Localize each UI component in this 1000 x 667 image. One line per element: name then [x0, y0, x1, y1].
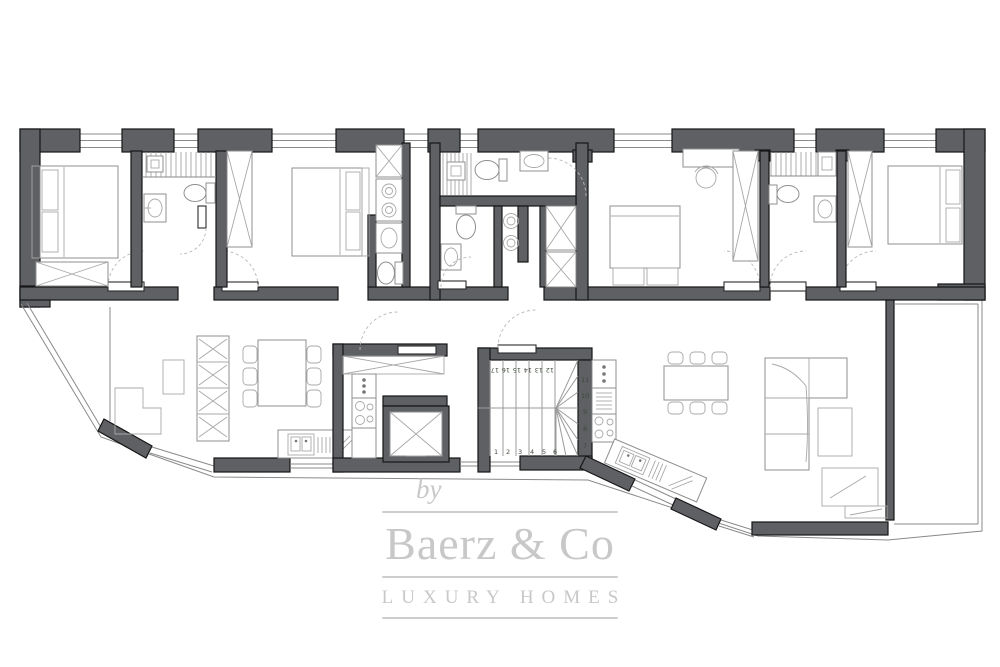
svg-text:8: 8 — [583, 425, 587, 433]
core-top-bathroom — [443, 151, 586, 196]
sink — [144, 194, 166, 222]
svg-text:7: 7 — [583, 442, 587, 450]
washer-column — [504, 214, 519, 251]
right-exterior-wall — [964, 129, 985, 300]
watermark-tagline: LUXURY HOMES — [372, 587, 628, 609]
watermark-rule-mid — [382, 576, 618, 578]
svg-text:1: 1 — [494, 448, 498, 456]
hall-closet — [546, 206, 576, 287]
corner-sofa — [765, 358, 847, 470]
terrace-wall — [886, 300, 894, 520]
toilet — [184, 183, 215, 203]
sink — [814, 196, 836, 222]
sink — [376, 223, 402, 253]
bedroom-4 — [848, 151, 962, 247]
toilet — [378, 262, 404, 284]
staircase: 17 16 15 14 13 12 11 10 9 8 7 1 2 3 4 5 … — [460, 310, 592, 472]
right-terrace — [845, 304, 978, 524]
watermark: by Baerz & Co LUXURY HOMES — [372, 474, 628, 619]
door-leaf — [770, 282, 806, 291]
svg-text:9: 9 — [583, 408, 587, 416]
stairs-down-hatch — [443, 153, 471, 195]
entry-core-block — [333, 312, 460, 472]
bench-chest — [36, 262, 108, 286]
ensuite-2 — [376, 145, 403, 284]
svg-text:14: 14 — [524, 366, 532, 374]
wardrobe-3 — [733, 151, 758, 261]
closet — [376, 145, 402, 177]
core-bottom-bathroom — [438, 206, 576, 289]
entry-door-leaf — [398, 346, 436, 354]
left-living-room — [98, 307, 352, 472]
entry-door-leaf — [498, 345, 536, 353]
pillow — [613, 268, 644, 285]
door-leaf — [724, 282, 760, 291]
svg-text:4: 4 — [530, 448, 534, 456]
svg-text:6: 6 — [553, 448, 557, 456]
entry-closet — [343, 356, 444, 374]
kitchen-tall-column — [352, 374, 376, 458]
door-leaf — [438, 281, 466, 289]
bedroom-2 — [292, 168, 369, 256]
svg-text:12: 12 — [546, 366, 554, 374]
sofa — [197, 336, 229, 441]
double-bed — [888, 166, 962, 244]
toilet — [456, 206, 476, 239]
coffee-table — [818, 408, 852, 456]
balcony-inner-edge — [27, 303, 105, 434]
wardrobe-1 — [227, 151, 252, 247]
sink — [520, 151, 548, 171]
coffee-table — [163, 360, 184, 394]
bathroom-1 — [143, 152, 216, 254]
bedroom-3 — [610, 149, 758, 285]
elevator — [383, 406, 449, 462]
tv-cabinet — [822, 468, 878, 506]
bottom-wall-pier — [214, 458, 290, 472]
watermark-by: by — [372, 474, 628, 505]
watermark-rule-top — [382, 511, 618, 513]
terrace-bench — [845, 506, 887, 518]
terrace-planter — [115, 388, 161, 434]
stove — [352, 398, 376, 428]
watermark-rule-bottom — [382, 617, 618, 619]
svg-text:5: 5 — [542, 448, 546, 456]
stair-step-numbers: 17 16 15 14 13 12 11 10 9 8 7 1 2 3 4 5 … — [491, 366, 590, 456]
washer-dryer — [376, 179, 402, 221]
svg-text:15: 15 — [513, 366, 521, 374]
svg-text:13: 13 — [535, 366, 543, 374]
svg-text:11: 11 — [581, 376, 589, 384]
wardrobe-4 — [848, 151, 872, 247]
bathroom-2 — [769, 152, 836, 222]
svg-text:16: 16 — [502, 366, 510, 374]
dining-table — [243, 340, 321, 407]
door-leaf — [198, 206, 206, 228]
toilet — [475, 159, 507, 181]
desk — [683, 149, 739, 188]
svg-text:17: 17 — [491, 366, 499, 374]
watermark-brand: Baerz & Co — [372, 517, 628, 570]
double-bed — [610, 206, 680, 268]
pillow — [647, 268, 678, 285]
bedroom-1 — [32, 166, 118, 286]
floor-plan-page: 17 16 15 14 13 12 11 10 9 8 7 1 2 3 4 5 … — [0, 0, 1000, 667]
sink — [441, 244, 461, 270]
svg-text:2: 2 — [506, 448, 510, 456]
svg-text:10: 10 — [581, 392, 589, 400]
toilet — [769, 185, 799, 204]
dining-table — [664, 352, 728, 414]
svg-text:3: 3 — [518, 448, 522, 456]
shower — [769, 152, 836, 176]
shower — [143, 152, 216, 177]
